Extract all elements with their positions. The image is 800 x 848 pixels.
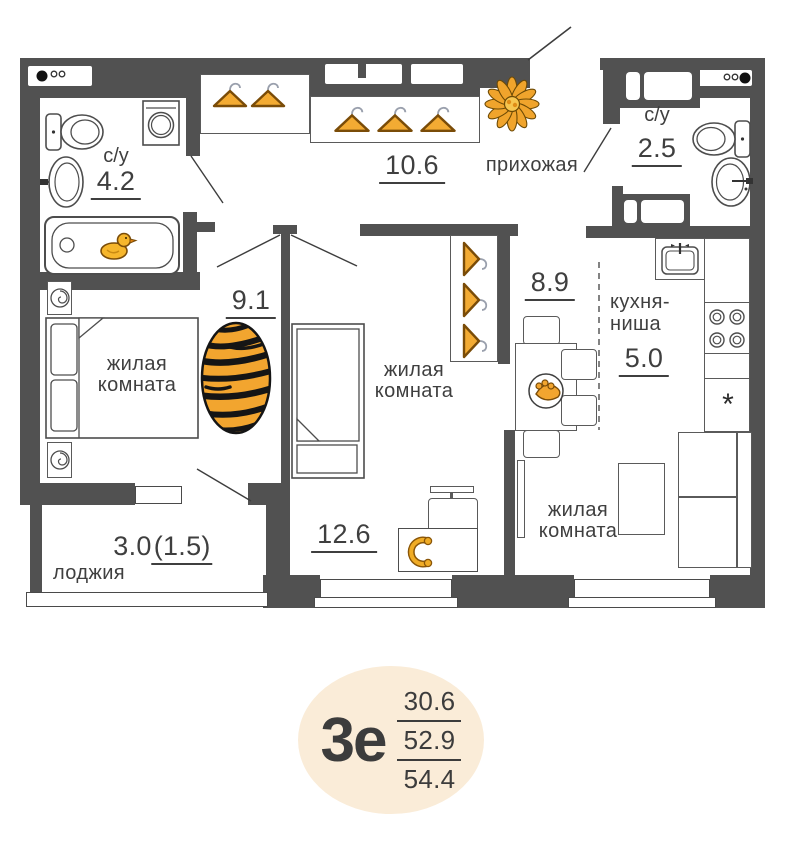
wall xyxy=(750,58,765,608)
wall xyxy=(710,575,765,608)
window xyxy=(320,579,452,598)
shaft-opening xyxy=(641,200,684,223)
dining-chair xyxy=(523,316,560,345)
room-area-bedroom: 9.1 xyxy=(226,286,276,319)
sink-icon xyxy=(710,156,754,208)
bedside-lamp-icon xyxy=(48,286,72,310)
door-swing-line xyxy=(197,469,251,501)
kitchen-sink-icon xyxy=(657,240,703,278)
wall-tab xyxy=(358,64,366,78)
shaft-opening xyxy=(644,72,692,100)
hanger-icon xyxy=(454,322,494,360)
monitor xyxy=(430,486,474,493)
entrance-door-line xyxy=(528,27,571,60)
area-fraction: 30.6 52.9 54.4 xyxy=(397,685,461,796)
sofa xyxy=(678,432,752,568)
wall xyxy=(504,430,515,576)
window xyxy=(574,579,710,598)
wall xyxy=(273,225,297,234)
fraction-divider xyxy=(397,720,461,722)
vent-dots-icon xyxy=(28,66,92,86)
radiator xyxy=(517,460,525,538)
wall xyxy=(452,575,574,608)
coffee-table xyxy=(618,463,665,535)
bedside-lamp-icon xyxy=(48,448,72,472)
room-area-hallway: 10.6 xyxy=(379,151,445,184)
room-name-middle: жилая комната xyxy=(375,360,453,402)
room-name-living: жилая комната xyxy=(539,500,617,542)
hanger-icon xyxy=(374,104,416,137)
room-area-loggia: 3.0(1.5) xyxy=(113,532,212,565)
washing-machine-icon xyxy=(142,100,180,146)
single-bed-icon xyxy=(291,323,365,479)
fruit-bowl-icon xyxy=(527,372,565,410)
room-area-middle: 12.6 xyxy=(311,520,377,553)
door-swing-line xyxy=(584,128,611,172)
shaft-opening xyxy=(624,200,637,223)
dining-chair xyxy=(561,395,597,426)
door-swing-line xyxy=(191,156,223,203)
wall xyxy=(183,212,197,274)
room-area-dining: 8.9 xyxy=(525,268,575,301)
floor-plan: * с/у 4.2 10.6 прихожая с/у 2.5 9.1 жила… xyxy=(0,0,800,848)
toilet-icon xyxy=(690,118,752,160)
hanger-icon xyxy=(454,240,494,278)
wall xyxy=(197,222,215,232)
hanger-icon xyxy=(454,281,494,319)
wall xyxy=(586,226,752,238)
sofa-seat-divider xyxy=(679,496,737,498)
wall xyxy=(498,224,510,364)
tiger-rug-icon xyxy=(200,321,272,435)
door-swing-line xyxy=(291,235,357,266)
room-name: с/у xyxy=(91,146,141,167)
hanger-icon xyxy=(417,104,459,137)
living-area-value: 30.6 xyxy=(404,685,456,718)
flower-icon xyxy=(484,74,540,134)
main-area-value: 52.9 xyxy=(404,724,456,757)
headphones-icon xyxy=(406,536,438,568)
door-swing-line xyxy=(217,235,280,267)
sofa-back-line xyxy=(736,433,738,567)
loggia-railing xyxy=(26,592,268,607)
total-area-value: 54.4 xyxy=(404,763,456,796)
wall xyxy=(186,74,200,156)
dining-chair xyxy=(523,430,560,458)
room-label-bathroom-small: с/у 4.2 xyxy=(91,146,141,200)
wall xyxy=(30,505,42,601)
hanger-icon xyxy=(210,80,250,112)
apartment-badge: 3е 30.6 52.9 54.4 xyxy=(298,666,484,814)
window-sill xyxy=(314,597,458,608)
room-name-bedroom: жилая комната xyxy=(98,354,176,396)
wall xyxy=(187,58,310,74)
window-sill xyxy=(568,597,716,608)
room-area: 2.5 xyxy=(632,134,682,167)
room-label-bathroom-guest: с/у 2.5 xyxy=(632,105,682,167)
room-name-kitchen: кухня- ниша xyxy=(610,291,670,335)
fridge-mark: * xyxy=(722,388,734,422)
fraction-divider xyxy=(397,759,461,761)
bathtub-icon xyxy=(44,216,180,276)
room-name: с/у xyxy=(632,105,682,126)
wall xyxy=(248,483,288,505)
wall xyxy=(263,575,320,608)
room-name-loggia: лоджия xyxy=(53,562,125,584)
room-area: 4.2 xyxy=(91,167,141,200)
dining-chair xyxy=(561,349,597,380)
room-area-kitchen: 5.0 xyxy=(619,344,669,377)
window xyxy=(135,486,182,504)
vent-dots-icon xyxy=(700,70,752,86)
plan-type-label: 3е xyxy=(321,705,386,776)
stove-burners-icon xyxy=(704,302,750,354)
hanger-icon xyxy=(331,104,373,137)
hanger-icon xyxy=(248,80,288,112)
wall xyxy=(20,483,135,505)
room-name-hallway: прихожая xyxy=(486,155,578,176)
wall xyxy=(603,58,620,124)
wall-niche xyxy=(411,64,463,84)
wall xyxy=(266,505,288,577)
sink-icon xyxy=(40,155,86,209)
shaft-opening xyxy=(626,72,640,100)
